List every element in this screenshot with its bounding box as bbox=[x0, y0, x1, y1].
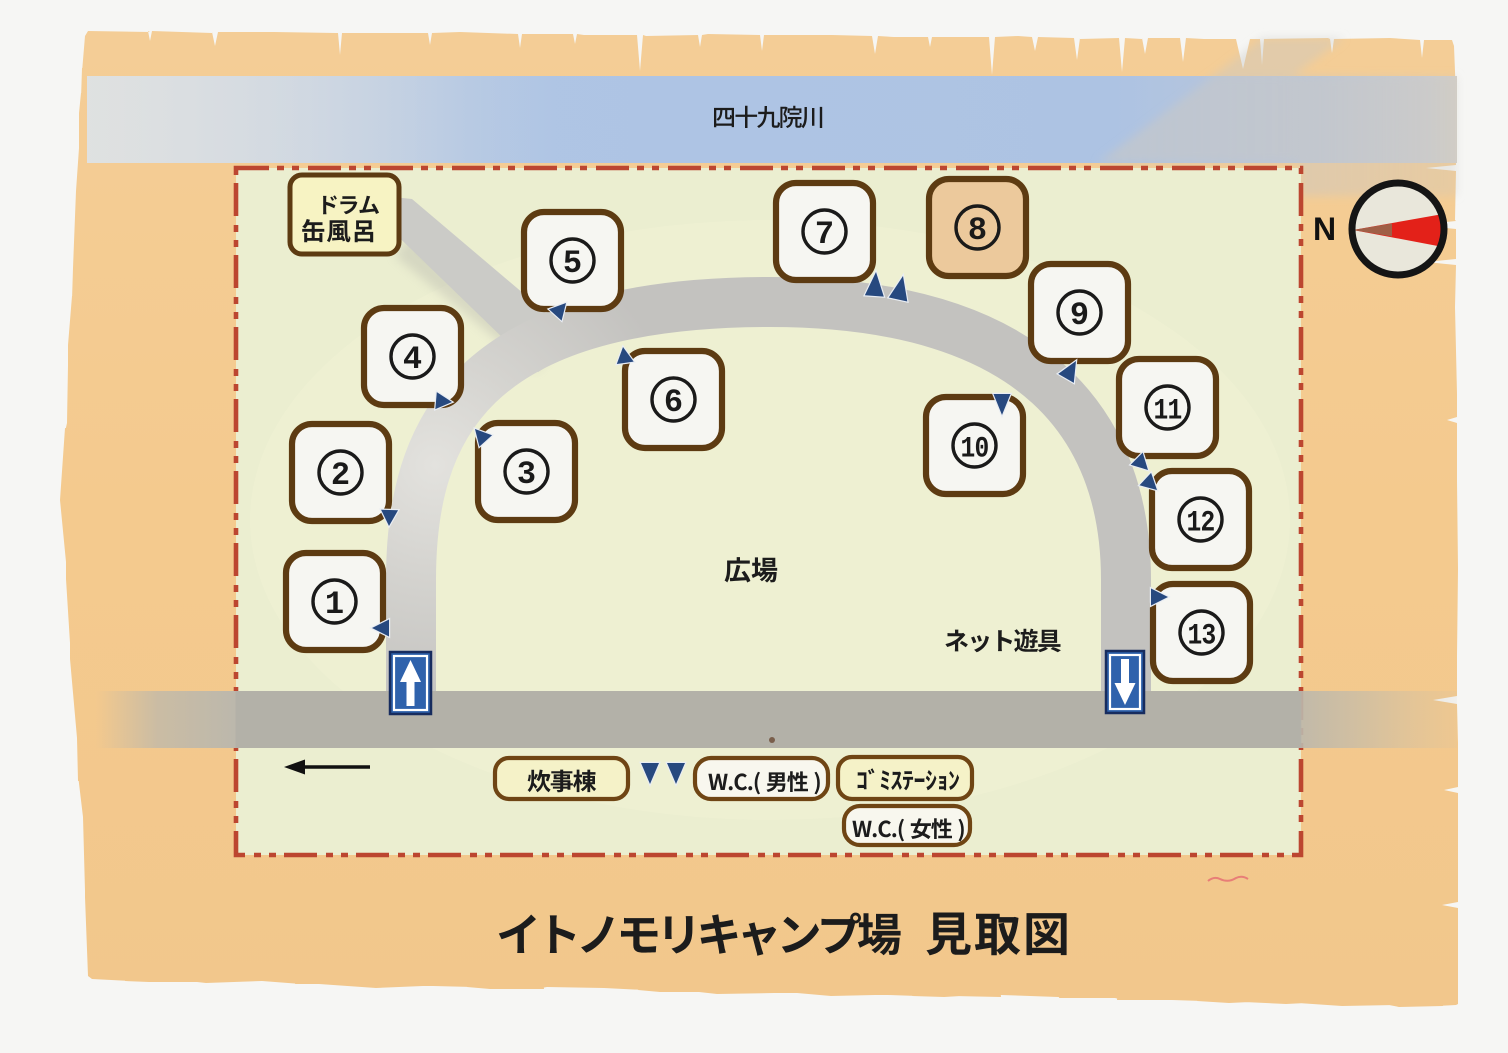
svg-text:N: N bbox=[1313, 211, 1336, 247]
svg-text:4: 4 bbox=[403, 341, 422, 378]
svg-text:12: 12 bbox=[1187, 506, 1215, 540]
svg-text:7: 7 bbox=[815, 216, 834, 253]
svg-text:1: 1 bbox=[325, 586, 344, 623]
svg-text:3: 3 bbox=[517, 456, 536, 493]
svg-text:11: 11 bbox=[1154, 394, 1182, 428]
svg-text:9: 9 bbox=[1070, 297, 1089, 334]
svg-text:8: 8 bbox=[968, 212, 987, 249]
svg-text:2: 2 bbox=[331, 457, 350, 494]
svg-text:6: 6 bbox=[664, 384, 683, 421]
svg-text:10: 10 bbox=[961, 432, 989, 466]
svg-text:5: 5 bbox=[563, 245, 582, 282]
svg-text:13: 13 bbox=[1188, 619, 1216, 653]
